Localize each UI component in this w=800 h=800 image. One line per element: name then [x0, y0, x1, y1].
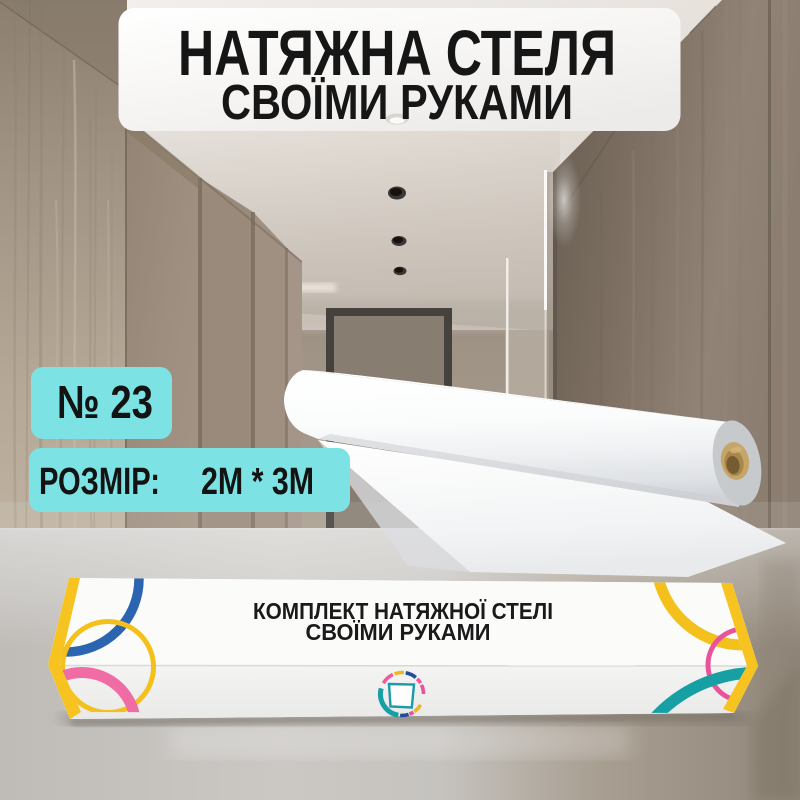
svg-text:СВОЇМИ РУКАМИ: СВОЇМИ РУКАМИ [306, 619, 491, 645]
svg-text:СВОЇМИ РУКАМИ: СВОЇМИ РУКАМИ [221, 75, 573, 130]
svg-text:2М * 3М: 2М * 3М [201, 461, 314, 503]
svg-text:№ 23: № 23 [57, 376, 153, 428]
svg-text:РОЗМІР:: РОЗМІР: [39, 461, 160, 503]
